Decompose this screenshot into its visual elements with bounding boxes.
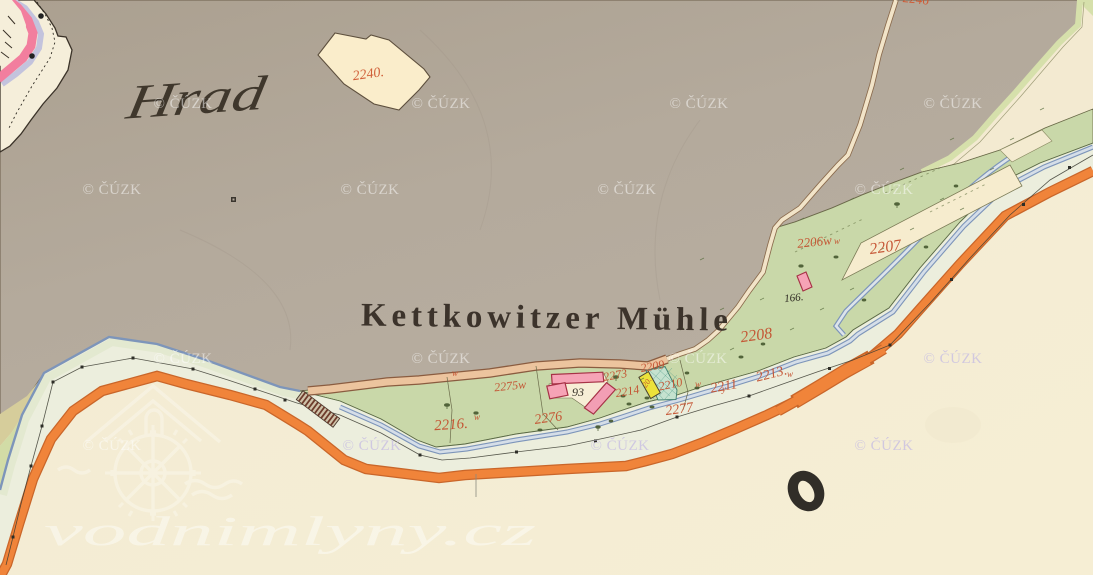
svg-text:vodnimlyny.cz: vodnimlyny.cz: [44, 508, 536, 554]
svg-text:w: w: [834, 236, 840, 246]
svg-text:© ČÚZK: © ČÚZK: [855, 181, 914, 198]
svg-text:© ČÚZK: © ČÚZK: [669, 350, 728, 367]
svg-text:166.: 166.: [784, 291, 804, 305]
svg-text:y: y: [721, 384, 726, 394]
svg-text:w: w: [695, 379, 701, 389]
svg-text:© ČÚZK: © ČÚZK: [924, 350, 983, 367]
svg-text:© ČÚZK: © ČÚZK: [412, 95, 471, 112]
svg-text:w: w: [452, 368, 458, 378]
svg-text:© ČÚZK: © ČÚZK: [598, 181, 657, 198]
svg-text:© ČÚZK: © ČÚZK: [83, 181, 142, 198]
svg-text:w: w: [474, 412, 480, 422]
svg-text:© ČÚZK: © ČÚZK: [341, 181, 400, 198]
svg-text:© ČÚZK: © ČÚZK: [154, 95, 213, 112]
svg-text:© ČÚZK: © ČÚZK: [924, 95, 983, 112]
svg-text:© ČÚZK: © ČÚZK: [855, 437, 914, 454]
svg-text:© ČÚZK: © ČÚZK: [154, 350, 213, 367]
svg-text:93: 93: [572, 385, 584, 399]
svg-text:w: w: [787, 369, 793, 379]
svg-text:© ČÚZK: © ČÚZK: [343, 437, 402, 454]
svg-text:2216.: 2216.: [434, 416, 469, 434]
svg-text:© ČÚZK: © ČÚZK: [670, 95, 729, 112]
svg-text:© ČÚZK: © ČÚZK: [412, 350, 471, 367]
svg-text:© ČÚZK: © ČÚZK: [591, 437, 650, 454]
